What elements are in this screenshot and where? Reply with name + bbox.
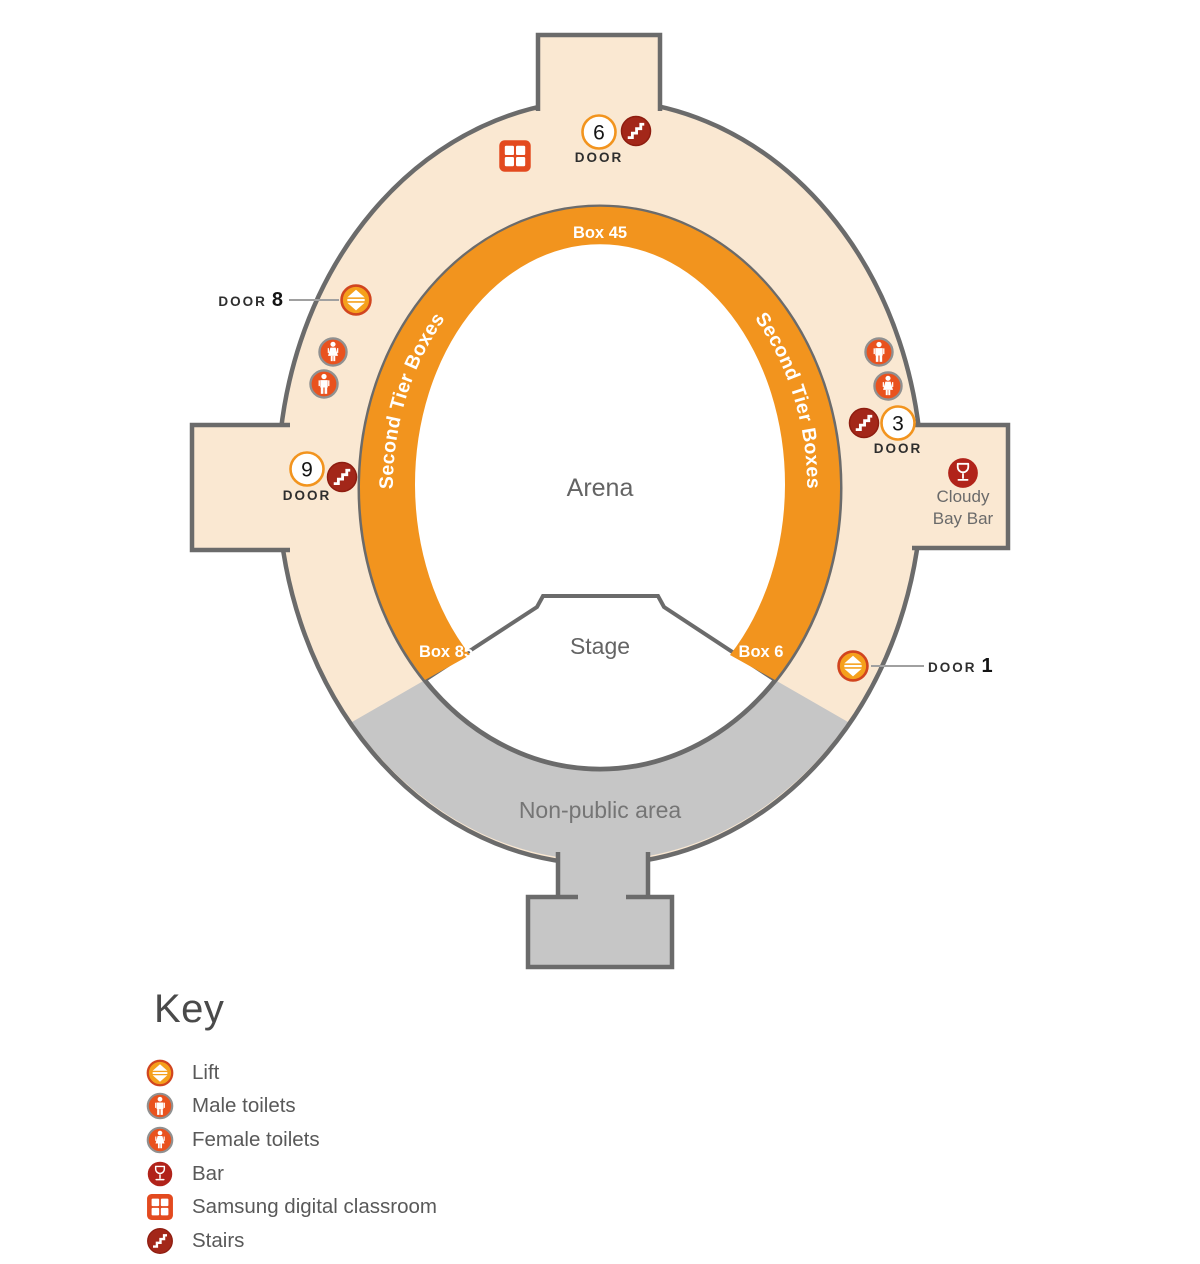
key-item-label: Bar	[192, 1162, 224, 1186]
bar-name-line2: Bay Bar	[933, 509, 994, 528]
door-8-callout: DOOR8	[218, 286, 370, 315]
door-6-word: DOOR	[575, 150, 624, 165]
door-6-number: 6	[593, 122, 605, 145]
box-6-label: Box 6	[739, 643, 784, 661]
stairs-icon	[849, 408, 878, 437]
door-9-number: 9	[301, 459, 313, 482]
stairs-icon	[327, 462, 356, 491]
key-item-lift: Lift	[146, 1056, 437, 1090]
south-corridor	[528, 850, 672, 967]
bar-icon	[948, 458, 978, 488]
male-toilets-icon	[865, 338, 892, 365]
key-item-label: Female toilets	[192, 1128, 320, 1152]
key-item-label: Samsung digital classroom	[192, 1195, 437, 1219]
lift-icon	[839, 652, 868, 681]
non-public-label: Non-public area	[519, 797, 682, 823]
lift-icon	[146, 1059, 174, 1087]
door-1-callout: DOOR1	[839, 652, 993, 681]
door-3-number: 3	[892, 413, 904, 436]
key-item-label: Stairs	[192, 1229, 244, 1253]
box-45-label: Box 45	[573, 224, 627, 242]
female-toilets-icon	[146, 1126, 174, 1154]
stairs-icon	[146, 1227, 174, 1255]
key-item-female-toilets: Female toilets	[146, 1123, 437, 1157]
key-title: Key	[154, 985, 437, 1033]
key-item-stairs: Stairs	[146, 1224, 437, 1258]
bar-icon	[146, 1160, 174, 1188]
key-item-label: Male toilets	[192, 1094, 296, 1118]
door-9-word: DOOR	[283, 488, 332, 503]
stage-label: Stage	[570, 633, 630, 659]
male-toilets-icon	[146, 1092, 174, 1120]
stairs-icon	[621, 116, 650, 145]
bar-name-line1: Cloudy	[937, 487, 990, 506]
key-item-samsung-digital-classroom: Samsung digital classroom	[146, 1190, 437, 1224]
north-corridor	[538, 35, 660, 113]
key-item-label: Lift	[192, 1061, 219, 1085]
key-item-bar: Bar	[146, 1157, 437, 1191]
key-item-male-toilets: Male toilets	[146, 1090, 437, 1124]
venue-map-page: Second Tier Boxes Second Tier Boxes Box …	[0, 0, 1200, 1264]
arena-label: Arena	[567, 474, 634, 502]
samsung-digital-classroom-icon	[146, 1193, 174, 1221]
door-8-label: DOOR8	[218, 289, 283, 311]
box-85-label: Box 85	[419, 643, 473, 661]
door-1-label: DOOR1	[928, 655, 993, 677]
male-toilets-icon	[310, 370, 337, 397]
female-toilets-icon	[319, 338, 346, 365]
west-corridor	[192, 425, 290, 550]
samsung-digital-classroom-icon	[499, 140, 530, 171]
key-section: Key Lift Male toilets Female toilets Bar…	[146, 985, 437, 1258]
female-toilets-icon	[874, 372, 901, 399]
door-3-word: DOOR	[874, 441, 923, 456]
lift-icon	[342, 286, 371, 315]
